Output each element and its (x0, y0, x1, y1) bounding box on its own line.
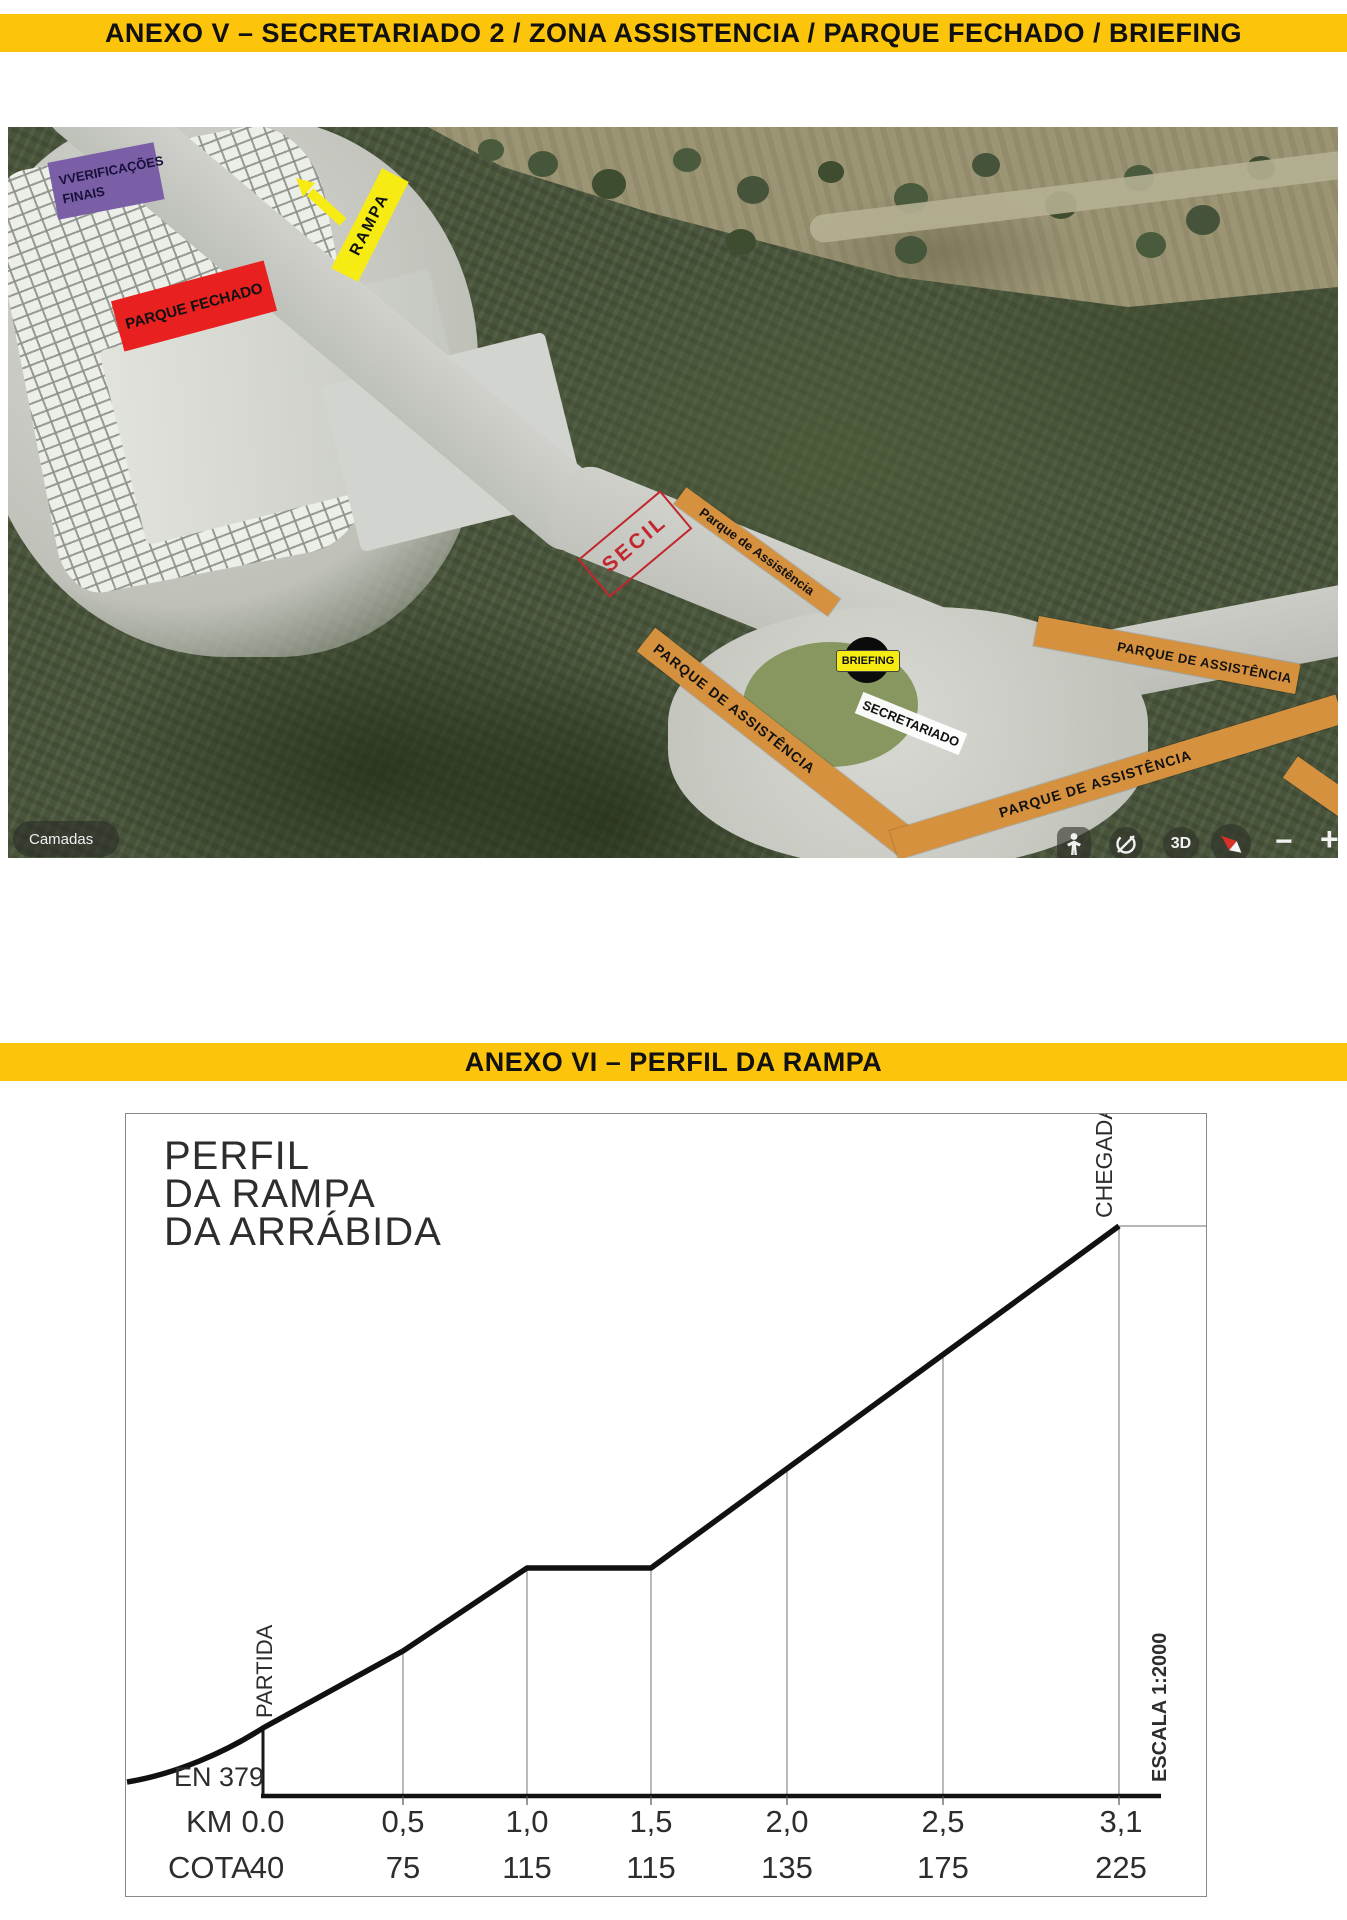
partida-label: PARTIDA (252, 1624, 277, 1718)
satellite-map: VVERIFICAÇÕES FINAIS PARQUE FECHADO RAMP… (8, 127, 1338, 858)
ramp-profile-svg: PERFIL DA RAMPA DA ARRÁBIDA PARTIDA CHEG… (126, 1114, 1206, 1896)
escala-label: ESCALA 1:2000 (1149, 1633, 1171, 1782)
km-tick-5: 2,5 (921, 1804, 964, 1839)
orbit-rotate-icon (1114, 832, 1138, 856)
anexo-v-title: ANEXO V – SECRETARIADO 2 / ZONA ASSISTEN… (105, 18, 1242, 49)
cota-value-6: 225 (1095, 1850, 1147, 1885)
rampa-direction-arrow (8, 127, 428, 287)
view-3d-label: 3D (1171, 835, 1191, 853)
chart-title-line3: DA ARRÁBIDA (164, 1209, 442, 1254)
parque-assistencia-bar-corner (1283, 756, 1338, 817)
km-tick-4: 2,0 (765, 1804, 808, 1839)
tree-cluster (478, 139, 504, 161)
anexo-vi-title: ANEXO VI – PERFIL DA RAMPA (465, 1047, 883, 1078)
compass-icon (1214, 827, 1248, 858)
layers-button-label: Camadas (29, 831, 93, 848)
pegman-icon (1063, 832, 1085, 856)
compass-button[interactable] (1211, 824, 1251, 858)
zoom-out-button[interactable]: − (1275, 825, 1293, 858)
view-3d-button[interactable]: 3D (1163, 827, 1199, 858)
pegman-button[interactable] (1057, 827, 1091, 858)
cota-value-0: 40 (250, 1850, 284, 1885)
km-tick-1: 0,5 (381, 1804, 424, 1839)
anexo-vi-header: ANEXO VI – PERFIL DA RAMPA (0, 1043, 1347, 1081)
cota-value-2: 115 (502, 1850, 551, 1885)
briefing-label: BRIEFING (836, 650, 900, 672)
km-tick-3: 1,5 (629, 1804, 672, 1839)
en379-label: EN 379 (174, 1762, 264, 1792)
chegada-label: CHEGADA (1091, 1114, 1117, 1218)
ramp-profile-chart: PERFIL DA RAMPA DA ARRÁBIDA PARTIDA CHEG… (125, 1113, 1207, 1897)
cota-value-1: 75 (386, 1850, 420, 1885)
km-tick-6: 3,1 (1099, 1804, 1142, 1839)
km-tick-2: 1,0 (505, 1804, 548, 1839)
km-tick-0: 0.0 (241, 1804, 284, 1839)
cota-axis-label: COTA (168, 1850, 252, 1885)
orbit-rotate-button[interactable] (1109, 827, 1143, 858)
layers-button[interactable]: Camadas (13, 821, 119, 857)
cota-value-4: 135 (761, 1850, 813, 1885)
cota-value-5: 175 (917, 1850, 969, 1885)
km-axis-label: KM (186, 1804, 233, 1839)
anexo-v-header: ANEXO V – SECRETARIADO 2 / ZONA ASSISTEN… (0, 14, 1347, 52)
cota-value-3: 115 (626, 1850, 675, 1885)
zoom-in-button[interactable]: + (1320, 821, 1338, 858)
